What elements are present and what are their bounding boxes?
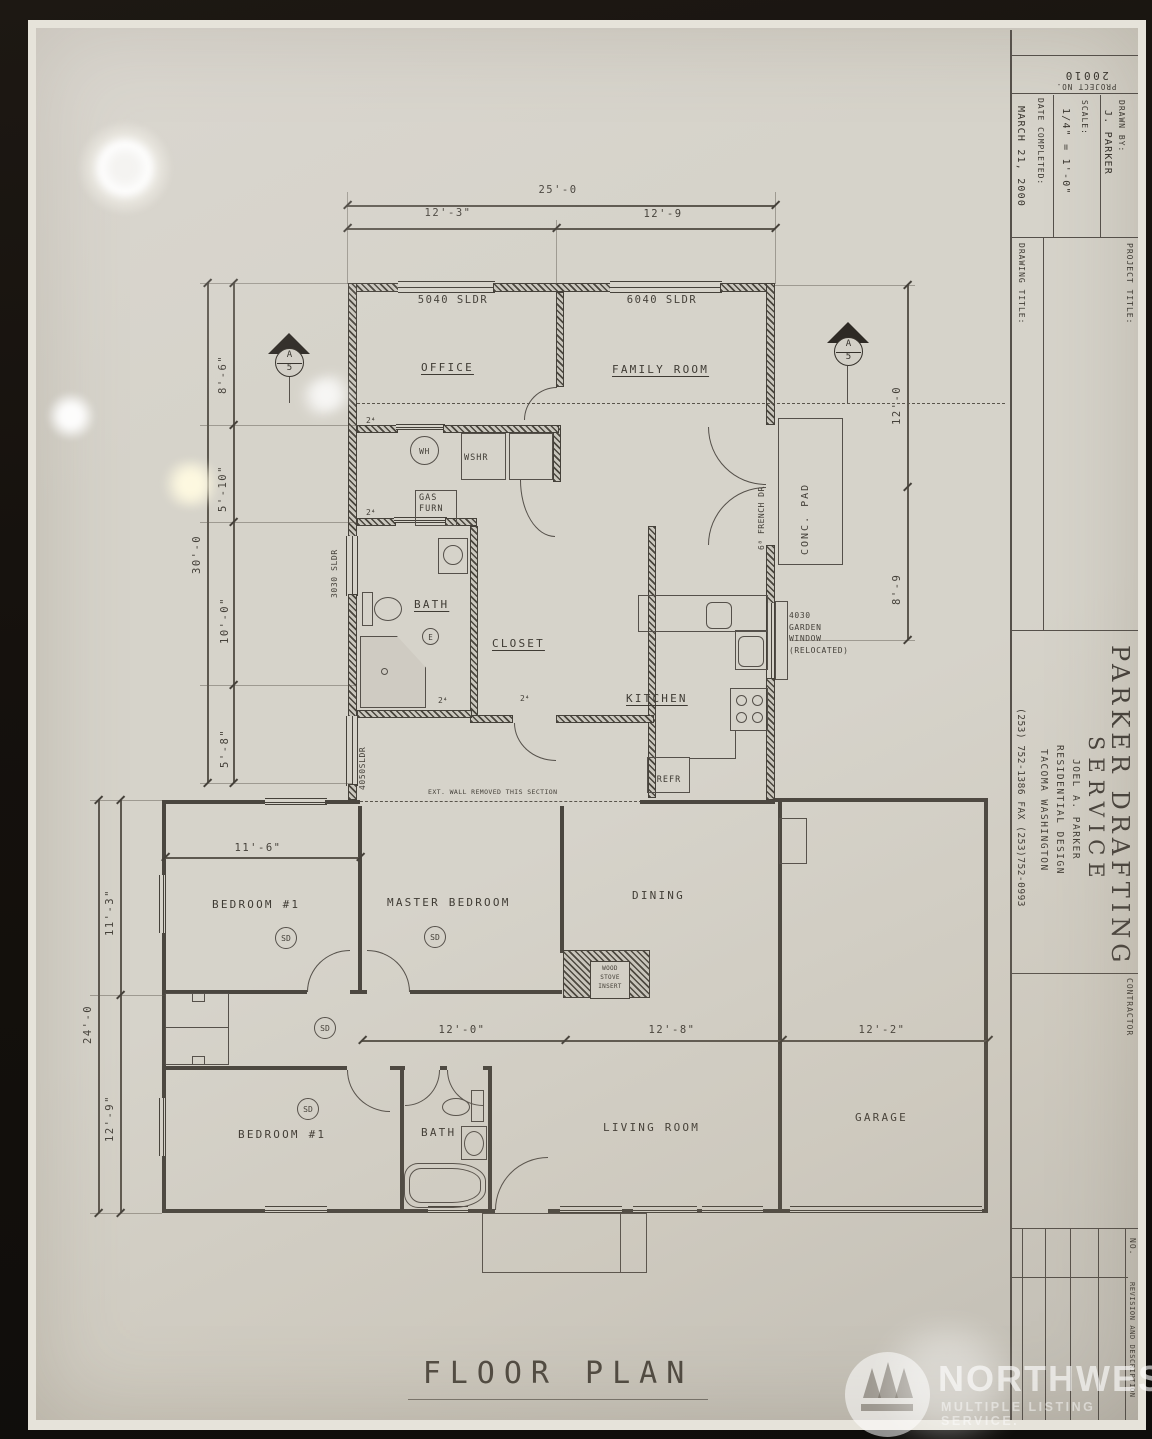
watermark-subtitle: MULTIPLE LISTING SERVICE.: [941, 1400, 1152, 1428]
chimney: [779, 818, 807, 864]
gas-furnace-label: GAS FURN: [419, 493, 443, 515]
living-room-window-3: [702, 1206, 763, 1213]
drawn-by-label: DRAWN BY:: [1117, 100, 1126, 152]
dim-top-right: 12'-9: [603, 208, 723, 220]
dim-lower-left-1: 11'-3": [104, 860, 116, 936]
smoke-detector-bedroom1-upper: SD: [275, 927, 297, 949]
dim-left-4: 5'-8": [219, 702, 231, 768]
dim-left-overall: 30'-0: [191, 496, 203, 574]
toilet-upper-bowl: [374, 597, 402, 621]
drawing-title-label: DRAWING TITLE:: [1017, 243, 1026, 324]
callout-garden-window: 4030 GARDEN WINDOW (RELOCATED): [789, 610, 849, 656]
date-completed-value: MARCH 21, 2000: [1015, 106, 1026, 207]
callout-5040-sldr: 5040 SLDR: [393, 294, 513, 306]
company-city: TACOMA WASHINGTON: [1038, 650, 1049, 970]
washer-label: WSHR: [464, 453, 488, 464]
room-label-family-room: FAMILY ROOM: [612, 363, 709, 377]
room-label-office: OFFICE: [421, 361, 474, 375]
company-owner: JOEL A. PARKER: [1070, 650, 1081, 970]
room-label-kitchen: KITCHEN: [626, 692, 688, 706]
callout-6040-sldr: 6040 SLDR: [602, 294, 722, 306]
callout-4050-sldr: 4050SLDR: [358, 714, 367, 790]
company-phone: (253) 752-1386 FAX (253)752-0993: [1015, 640, 1026, 975]
refrigerator-label: REFR: [649, 775, 689, 786]
section-marker-left: A5: [275, 348, 304, 377]
left-wall-window-lower: [159, 1098, 166, 1156]
dryer: [509, 433, 553, 480]
door-size-mark-4: 2⁴: [520, 694, 530, 703]
company-name-line1: PARKER DRAFTING: [1106, 645, 1134, 975]
project-number-box: PROJECT NO. 20010: [1038, 57, 1134, 91]
dim-left-3: 10'-0": [219, 568, 231, 644]
wood-stove-label: WOOD STOVE INSERT: [591, 964, 629, 991]
kitchen-counter-top: [638, 595, 768, 632]
room-label-bedroom1-lower: BEDROOM #1: [238, 1128, 326, 1142]
date-completed-label: DATE COMPLETED:: [1036, 98, 1045, 185]
electrical-mark: E: [422, 628, 439, 645]
window-3030-sldr: [346, 536, 358, 596]
project-no-value: 20010: [1038, 69, 1134, 82]
door-size-mark-2: 2⁴: [366, 508, 376, 517]
wood-stove: WOOD STOVE INSERT: [590, 961, 630, 999]
kitchen-sink-1: [706, 602, 732, 629]
callout-3030-sldr: 3030 SLDR: [330, 536, 339, 598]
toilet-upper-tank: [362, 592, 373, 626]
smoke-detector-hall: SD: [314, 1017, 336, 1039]
mls-logo-icon: [845, 1352, 930, 1437]
room-label-bedroom1-upper: BEDROOM #1: [212, 898, 300, 912]
door-size-mark-3: 2⁴: [438, 696, 448, 705]
dim-living: 12'-8": [612, 1024, 732, 1036]
toilet-lower-bowl: [442, 1098, 470, 1116]
bedroom1-upper-window: [265, 798, 327, 805]
concrete-pad-label: CONC. PAD: [800, 440, 811, 555]
room-label-dining: DINING: [632, 889, 685, 903]
dim-lower-left-overall: 24'-0: [82, 966, 94, 1044]
revision-no-label: NO.: [1128, 1238, 1137, 1255]
garage-door: [790, 1206, 982, 1213]
section-marker-right: A5: [834, 337, 863, 366]
room-label-closet: CLOSET: [492, 637, 545, 651]
toilet-lower-tank: [471, 1090, 484, 1122]
smoke-detector-master: SD: [424, 926, 446, 948]
living-room-window-2: [633, 1206, 697, 1213]
scale-label: SCALE:: [1080, 100, 1089, 135]
framed-floor-plan-photo: PROJECT NO. 20010 DRAWN BY: J. PARKER SC…: [0, 0, 1152, 1439]
dim-hall: 12'-0": [402, 1024, 522, 1036]
project-title-label: PROJECT TITLE:: [1125, 243, 1134, 324]
callout-french-door: 6⁸ FRENCH DR: [757, 432, 766, 550]
door-size-mark-1: 2⁴: [366, 416, 376, 425]
dim-garage: 12'-2": [822, 1024, 942, 1036]
room-label-bath-lower: BATH: [421, 1126, 456, 1140]
drawing-title: FLOOR PLAN: [408, 1356, 708, 1400]
watermark-name: NORTHWEST: [938, 1358, 1152, 1400]
bath-lower-sink: [464, 1131, 484, 1156]
hall-closets: [165, 993, 229, 1065]
stove: [730, 688, 768, 731]
shower-drain: [381, 668, 388, 675]
room-label-living-room: LIVING ROOM: [603, 1121, 700, 1135]
left-wall-window-upper: [159, 875, 166, 933]
window-6040-sldr: [610, 281, 722, 293]
contractor-label: CONTRACTOR: [1125, 978, 1134, 1036]
dim-top-left: 12'-3": [388, 207, 508, 219]
dim-lower-left-2: 12'-9": [104, 1064, 116, 1142]
dim-right-1: 12'-0: [891, 345, 903, 425]
dim-left-2: 5'-10": [217, 440, 229, 512]
water-heater: WH: [410, 436, 439, 465]
room-label-bath-upper: BATH: [414, 598, 449, 612]
smoke-detector-bedroom1-lower: SD: [297, 1098, 319, 1120]
company-tagline: RESIDENTIAL DESIGN: [1054, 650, 1065, 970]
bath-upper-sink: [443, 545, 463, 565]
room-label-master-bedroom: MASTER BEDROOM: [387, 896, 511, 910]
dim-left-1: 8'-6": [217, 322, 229, 394]
living-room-window-1: [560, 1206, 622, 1213]
bedroom1-lower-window: [265, 1206, 327, 1213]
dim-top-overall: 25'-0: [498, 184, 618, 196]
dim-right-2: 8'-9: [891, 535, 903, 605]
front-porch: [482, 1213, 647, 1273]
dim-bedroom1-width: 11'-6": [198, 842, 318, 854]
note-ext-wall-removed: EXT. WALL REMOVED THIS SECTION: [428, 788, 557, 796]
scale-value: 1/4" = 1'-0": [1060, 108, 1071, 195]
drawn-by-value: J. PARKER: [1102, 110, 1113, 175]
kitchen-sink-2: [738, 636, 764, 667]
company-name-line2: SERVICE: [1084, 660, 1108, 960]
window-5040-sldr: [398, 281, 495, 293]
window-4050-sldr: [346, 716, 358, 786]
project-no-label: PROJECT NO.: [1038, 82, 1134, 91]
room-label-garage: GARAGE: [855, 1111, 908, 1125]
